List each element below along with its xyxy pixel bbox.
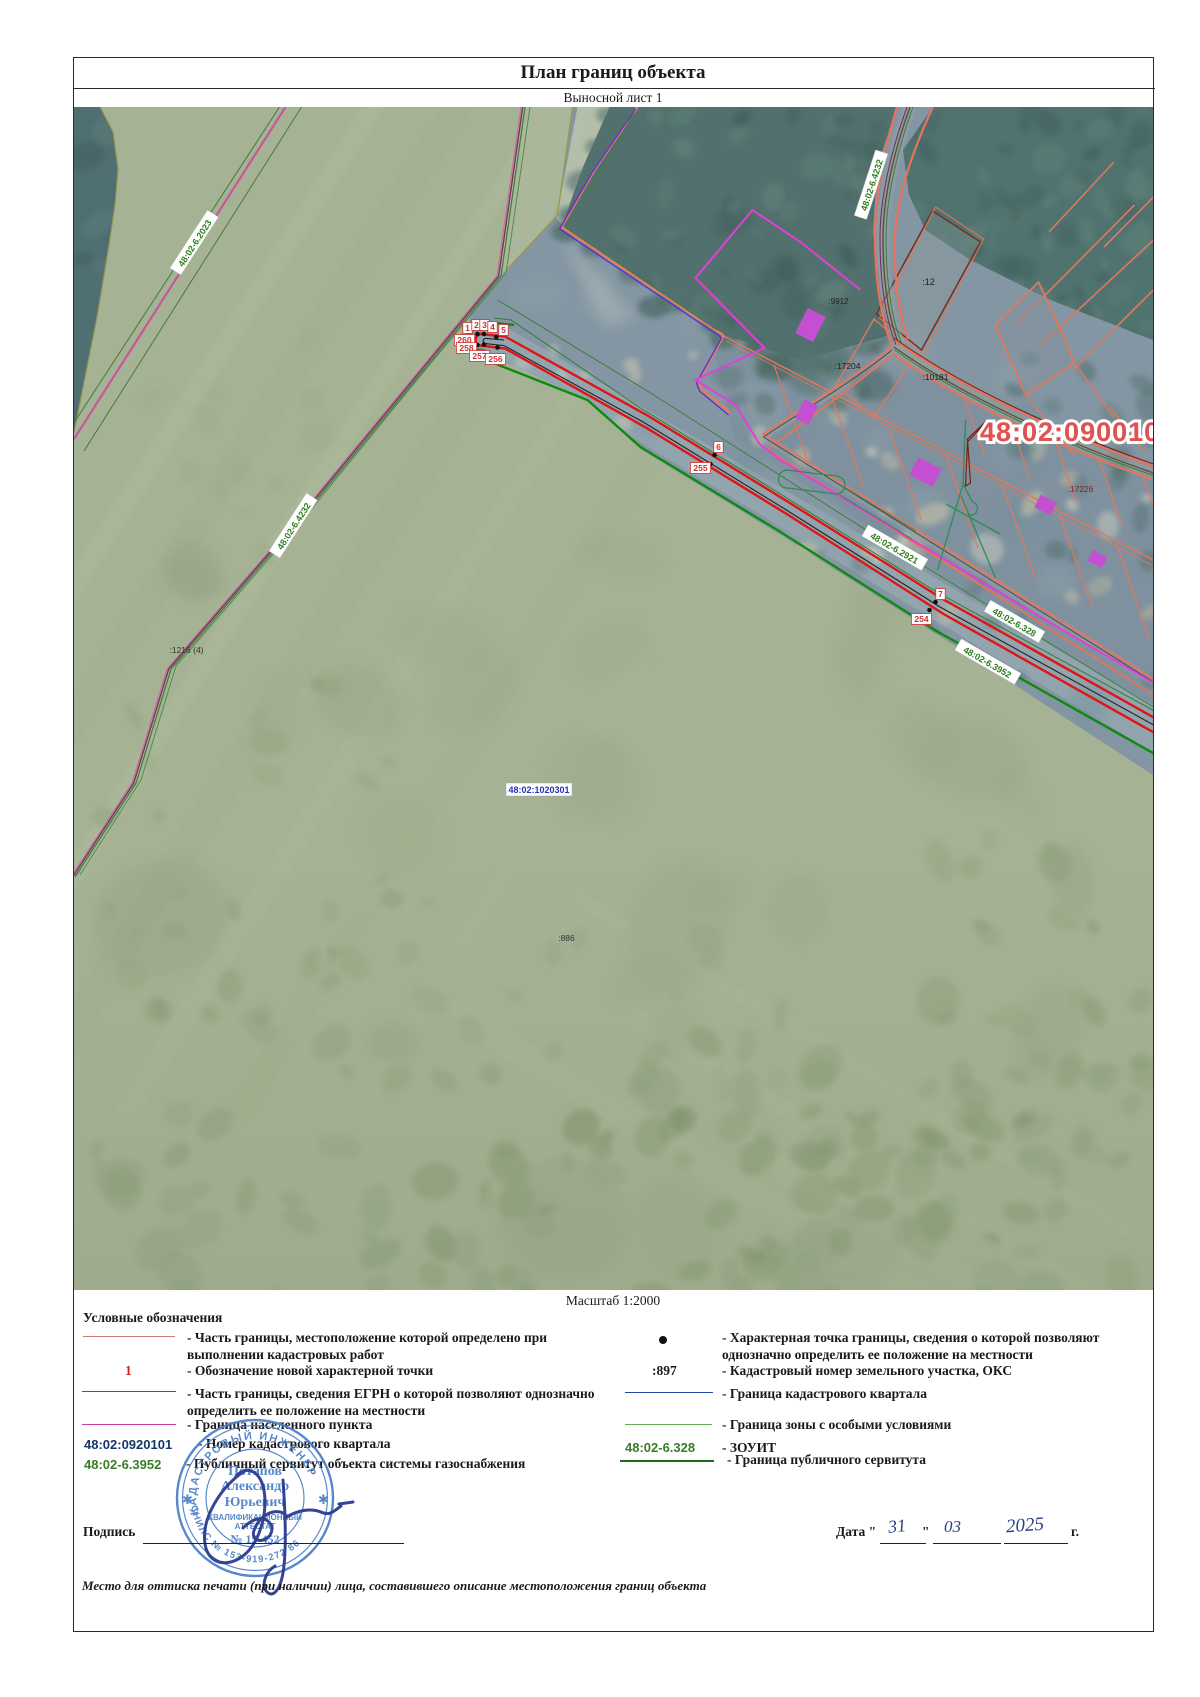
- svg-text:48:02:1020301: 48:02:1020301: [508, 785, 569, 795]
- svg-text:✱: ✱: [318, 1492, 329, 1507]
- svg-text::9912: :9912: [828, 297, 849, 306]
- svg-text::886: :886: [558, 933, 575, 943]
- svg-text:48:02:0900101: 48:02:0900101: [980, 417, 1153, 447]
- svg-text::1216 (4): :1216 (4): [169, 645, 203, 655]
- svg-text:255: 255: [693, 463, 707, 473]
- svg-text:254: 254: [914, 614, 928, 624]
- svg-text:✱: ✱: [182, 1492, 193, 1507]
- svg-text:6: 6: [716, 442, 721, 452]
- svg-text::17226: :17226: [1067, 484, 1093, 494]
- svg-text::17204: :17204: [834, 361, 860, 371]
- svg-text:5: 5: [501, 325, 506, 335]
- svg-text:3: 3: [482, 320, 487, 330]
- svg-text:257: 257: [472, 351, 486, 361]
- svg-text:256: 256: [488, 354, 502, 364]
- svg-text:4: 4: [490, 322, 495, 332]
- svg-text::10181: :10181: [922, 372, 948, 382]
- svg-text:Юрьевич: Юрьевич: [225, 1495, 286, 1510]
- svg-text:2: 2: [474, 320, 479, 330]
- svg-text:1: 1: [465, 323, 470, 333]
- svg-text::12: :12: [922, 277, 935, 287]
- svg-text:7: 7: [938, 589, 943, 599]
